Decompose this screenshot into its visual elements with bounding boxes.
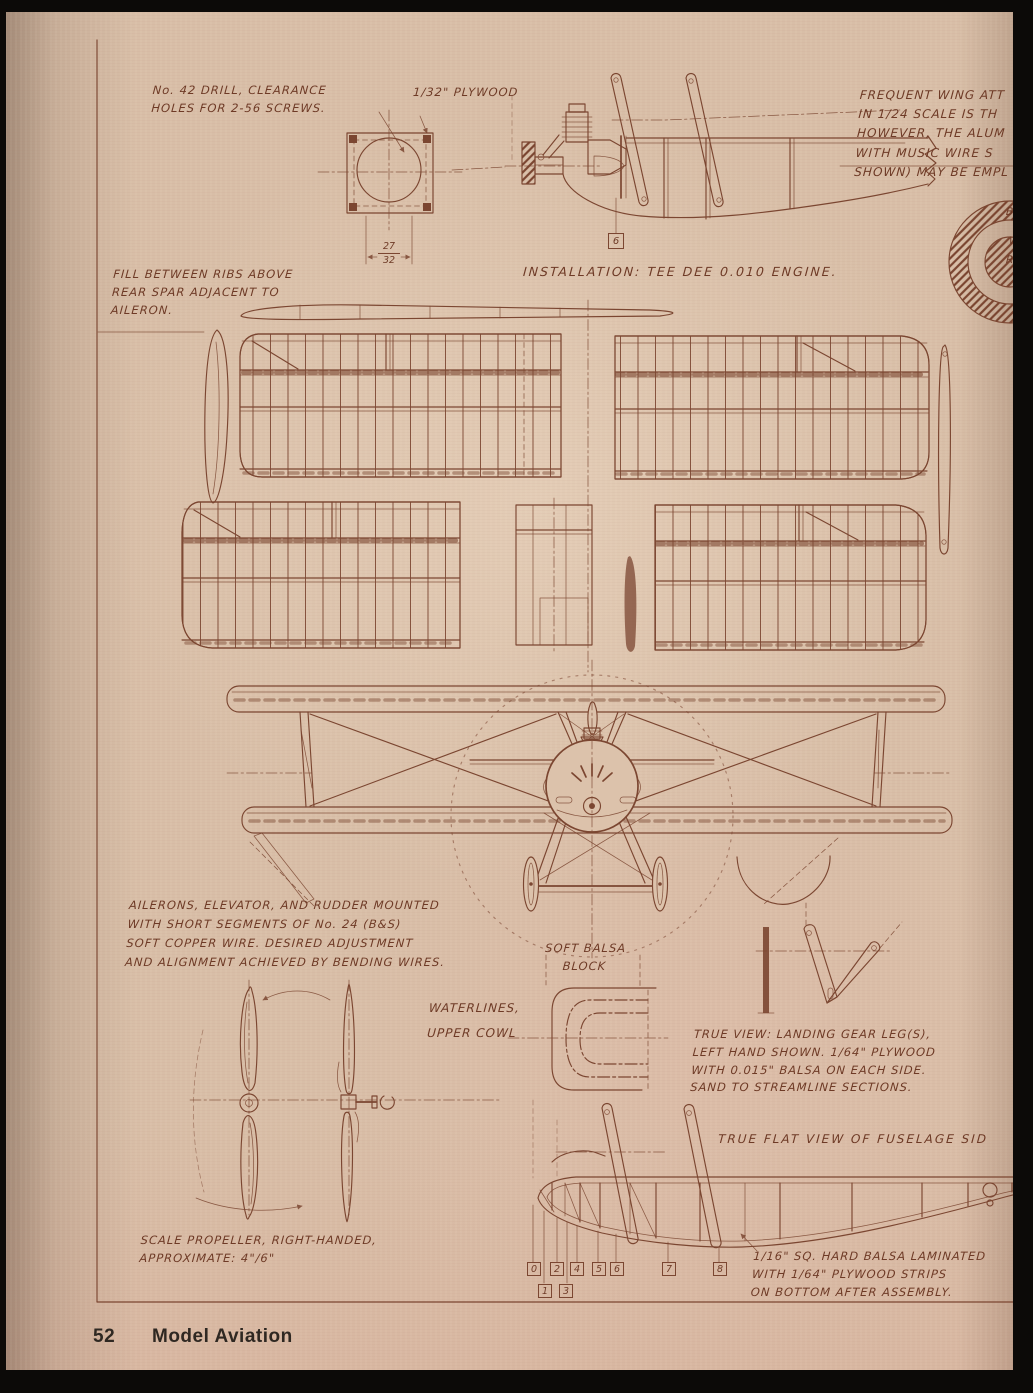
scanned-plan-page: No. 42 DRILL, CLEARANCE HOLES FOR 2-56 S…: [0, 0, 1033, 1393]
lower-wing-plan-left: [182, 502, 460, 648]
note-fill-ribs: FILL BETWEEN RIBS ABOVE REAR SPAR ADJACE…: [110, 266, 294, 319]
plan-border: [97, 40, 1013, 1302]
note-balsa-laminated: 1/16" SQ. HARD BALSA LAMINATED WITH 1/64…: [750, 1248, 987, 1301]
scan-edge-right: [1013, 0, 1033, 1393]
station-box-4: 4: [570, 1262, 584, 1276]
station-box-2: 2: [550, 1262, 564, 1276]
note-plywood: 1/32" PLYWOOD: [412, 84, 519, 102]
firewall-dimension: 27 32: [378, 241, 400, 266]
page-number: 52: [93, 1326, 115, 1348]
station-box-3: 3: [559, 1284, 573, 1298]
landing-gear-true-view-drawing: [756, 903, 902, 1013]
note-ailerons: AILERONS, ELEVATOR, AND RUDDER MOUNTED W…: [124, 896, 449, 972]
note-landing-gear: TRUE VIEW: LANDING GEAR LEG(S), LEFT HAN…: [690, 1026, 938, 1097]
label-waterlines: WATERLINES, UPPER COWL: [426, 996, 521, 1046]
scan-edge-bottom: [0, 1370, 1033, 1393]
engine-station-box: 6: [608, 233, 624, 249]
scan-edge-left: [0, 0, 6, 1393]
wing-center-section: [516, 498, 636, 652]
station-box-6: 6: [610, 1262, 624, 1276]
caption-installation: INSTALLATION: TEE DEE 0.010 ENGINE.: [522, 262, 838, 281]
station-box-5: 5: [592, 1262, 606, 1276]
note-wing-attach: FREQUENT WING ATT IN 1/24 SCALE IS TH HO…: [854, 86, 1033, 182]
magazine-title: Model Aviation: [152, 1326, 293, 1348]
caption-fuselage-view: TRUE FLAT VIEW OF FUSELAGE SID: [717, 1130, 988, 1149]
station-box-7: 7: [662, 1262, 676, 1276]
station-box-0: 0: [527, 1262, 541, 1276]
plan-linework: [0, 0, 1033, 1393]
upper-wing-plan-left: [240, 334, 561, 477]
scan-edge-top: [0, 0, 1033, 12]
firewall-detail-drawing: [318, 95, 512, 264]
dimension-denominator: 32: [378, 254, 400, 266]
upper-wing-plan-right: [615, 336, 929, 479]
station-box-8: 8: [713, 1262, 727, 1276]
lower-wing-plan-right: [655, 505, 926, 650]
label-soft-balsa: SOFT BALSA BLOCK: [529, 940, 641, 976]
note-drill: No. 42 DRILL, CLEARANCE HOLES FOR 2-56 S…: [151, 82, 328, 118]
station-box-1: 1: [538, 1284, 552, 1298]
dimension-numerator: 27: [378, 241, 400, 254]
note-propeller: SCALE PROPELLER, RIGHT-HANDED, APPROXIMA…: [139, 1232, 378, 1268]
